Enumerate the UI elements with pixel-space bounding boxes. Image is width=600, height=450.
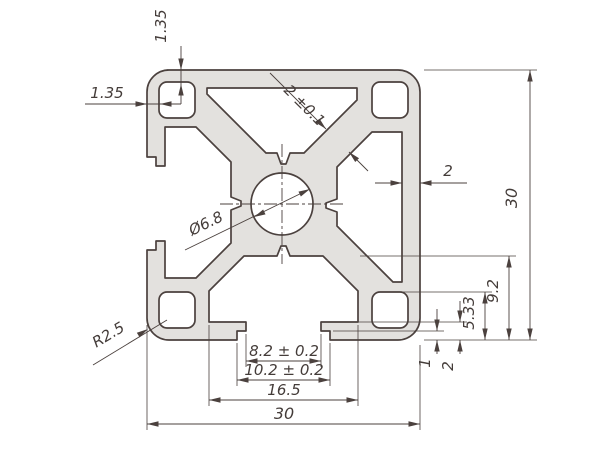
dim-slot-depth: 9.2 — [484, 279, 502, 303]
dim-wall-right: 2 — [443, 162, 453, 180]
arrowhead — [136, 101, 148, 106]
arrowhead — [434, 340, 439, 352]
arrowhead — [160, 101, 172, 106]
dim-recess-depth: 1 — [416, 358, 434, 368]
dim-corner-radius: R2.5 — [89, 318, 128, 351]
dim-slot-recess-width: 10.2 ± 0.2 — [244, 361, 323, 379]
arrowhead — [391, 180, 403, 185]
arrowhead — [527, 329, 532, 341]
dim-hole-to-face: 5.33 — [460, 296, 478, 329]
arrowhead — [506, 256, 511, 268]
arrowhead — [147, 421, 159, 426]
dim-profile-width: 30 — [274, 404, 294, 423]
arrowhead — [434, 320, 439, 332]
arrowhead — [178, 84, 183, 96]
dim-slot-inner-width: 16.5 — [267, 381, 300, 399]
arrowhead — [178, 59, 183, 71]
dim-profile-height: 30 — [502, 188, 521, 208]
arrowhead — [409, 421, 421, 426]
arrowhead — [457, 340, 462, 352]
dim-slot-opening: 8.2 ± 0.2 — [249, 342, 319, 360]
arrowhead — [482, 329, 487, 341]
arrowhead — [420, 180, 432, 185]
dim-wall-top: 1.35 — [152, 9, 170, 42]
arrowhead — [506, 329, 511, 341]
profile-drawing: 1.35 1.35 2 ±0.1 2 30 9.2 5.33 2 1 8.2 ±… — [0, 0, 600, 450]
dim-lip-height: 2 — [439, 361, 457, 371]
arrowhead — [347, 397, 359, 402]
dim-center-hole: Ø6.8 — [185, 208, 226, 240]
arrowhead — [527, 70, 532, 82]
dim-wall-left: 1.35 — [90, 84, 123, 102]
arrowhead — [209, 397, 221, 402]
drawing-canvas: 1.35 1.35 2 ±0.1 2 30 9.2 5.33 2 1 8.2 ±… — [0, 0, 600, 450]
profile-body — [147, 70, 420, 340]
